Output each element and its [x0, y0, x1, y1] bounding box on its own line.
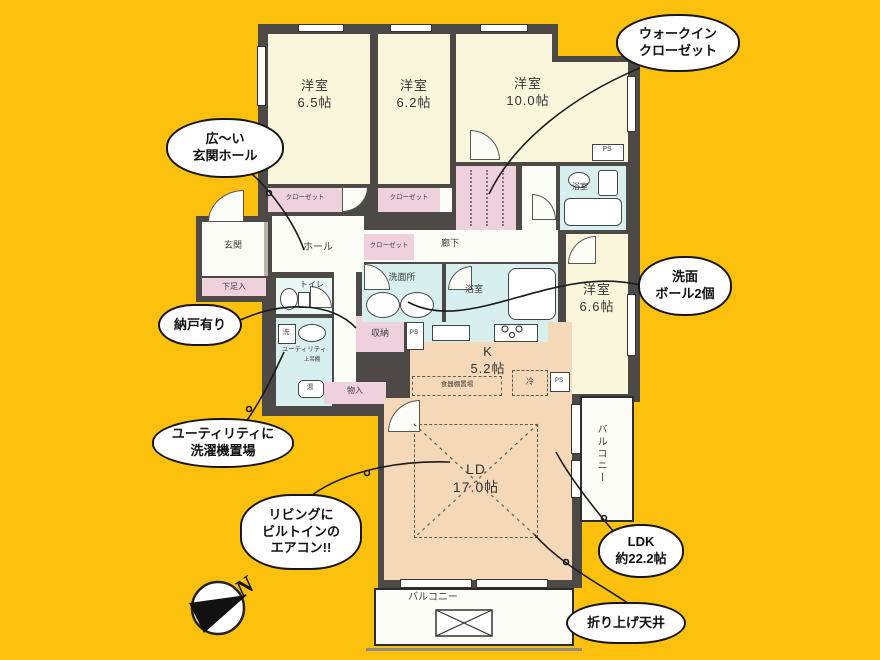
bathtub [564, 198, 622, 226]
fridge-label: 冷 [516, 377, 544, 387]
room-name: 洋室 [372, 78, 456, 95]
callout-line: 広〜い [205, 131, 244, 148]
callout-line: 約22.2帖 [615, 551, 666, 568]
room-size: 6.2帖 [372, 95, 456, 112]
water-heater-label: 湯 [298, 384, 322, 392]
entrance-label: 玄関 [202, 240, 264, 251]
utility-sink [298, 324, 326, 342]
ps-right-label: PS [550, 377, 568, 385]
toilet-label: トイレ [292, 280, 332, 290]
callout-line: エアコン!! [271, 540, 332, 557]
room-size: 5.2帖 [440, 361, 536, 378]
monoire-label: 物入 [324, 386, 386, 396]
window [571, 404, 581, 454]
callout-wash-bowls: 洗面 ボール2個 [638, 256, 732, 316]
closet-rail [486, 170, 488, 226]
balcony-ledge [366, 648, 582, 651]
leader-loop [365, 471, 370, 476]
floor-plan-canvas: バルコニー バルコニー PS PS PS [0, 0, 880, 660]
compass-north-label: N [230, 571, 261, 604]
callout-built-in-aircon: リビングに ビルトインの エアコン!! [240, 494, 362, 570]
callout-line: 納戸有り [174, 317, 226, 334]
callout-raised-ceiling: 折り上げ天井 [566, 602, 686, 644]
callout-line: ボール2個 [655, 286, 714, 303]
callout-entrance-hall: 広〜い 玄関ホール [166, 118, 284, 178]
utility-label: ユーティリティ [274, 346, 334, 354]
living-dining-label: LD 17.0帖 [418, 460, 534, 496]
balcony-right-label: バルコニー [594, 404, 606, 504]
room-name: 洋室 [260, 78, 370, 95]
callout-utility-washer: ユーティリティに 洗濯機置場 [152, 418, 294, 468]
callout-line: 玄関ホール [192, 148, 257, 165]
washroom-label: 洗面所 [366, 272, 438, 283]
entrance-step [264, 222, 268, 276]
closet-hall-label: クローゼット [364, 242, 414, 250]
window [400, 579, 472, 588]
ps-top-label: PS [592, 146, 622, 154]
callout-line: 折り上げ天井 [587, 615, 665, 632]
window [476, 579, 548, 588]
wash-bowl-1 [366, 292, 400, 318]
window [480, 24, 528, 32]
wash-bowl-2 [400, 292, 434, 318]
callout-line: クローゼット [639, 43, 717, 60]
closet-bed2-label: クローゼット [378, 194, 440, 202]
callout-line: リビングに [268, 507, 333, 524]
compass: N [189, 571, 261, 634]
closet-bed1-label: クローゼット [268, 194, 342, 202]
window [571, 460, 581, 498]
callout-line: ウォークイン [639, 26, 717, 43]
toilet-bowl [280, 288, 298, 310]
ps-kitchen-label: PS [406, 329, 422, 337]
callout-line: LDK [628, 534, 655, 551]
corridor-label: 廊下 [428, 238, 472, 249]
bed2-door-gap [440, 188, 452, 212]
washer-label: 洗 [278, 329, 294, 337]
stove [494, 324, 538, 342]
leader-loop [247, 407, 252, 412]
kitchen-label: K 5.2帖 [440, 344, 536, 378]
hall-label: ホール [286, 242, 350, 254]
room-name: 洋室 [564, 282, 630, 299]
bath-center-label: 浴室 [450, 284, 498, 295]
closet-rail [502, 170, 504, 226]
room-size: 17.0帖 [418, 478, 534, 496]
bedroom1-label: 洋室 6.5帖 [260, 78, 370, 112]
room-size: 10.0帖 [470, 93, 586, 110]
window [390, 24, 432, 32]
closet-rail [470, 170, 472, 226]
callout-line: 洗濯機置場 [190, 443, 255, 460]
kitchen-sink [432, 325, 470, 341]
bath-top-label: 浴室 [558, 182, 602, 192]
toilet-tank [298, 292, 310, 308]
callout-line: ビルトインの [262, 524, 340, 541]
bedroom3-label: 洋室 10.0帖 [470, 76, 586, 110]
bedroom2-label: 洋室 6.2帖 [372, 78, 456, 112]
callout-line: ユーティリティに [172, 426, 274, 443]
callout-line: 洗面 [672, 269, 698, 286]
upper-shelf-label: 上吊棚 [296, 357, 328, 364]
compass-needle [189, 595, 247, 633]
shoe-box-label: 下足入 [202, 282, 266, 292]
room-size: 6.6帖 [564, 299, 630, 316]
room-size: 6.5帖 [260, 95, 370, 112]
balcony-right [580, 396, 634, 522]
compass-circle [192, 582, 244, 634]
storage-label: 収納 [356, 328, 404, 339]
bathtub-center [508, 268, 556, 320]
bedroom4-label: 洋室 6.6帖 [564, 282, 630, 316]
callout-ldk-area: LDK 約22.2帖 [598, 524, 684, 578]
room-name: LD [418, 460, 534, 478]
window [627, 76, 636, 132]
entrance-door-arc [208, 190, 244, 222]
dish-shelf-label: 食器棚置場 [414, 381, 500, 389]
callout-storage-room: 納戸有り [158, 304, 242, 346]
window [298, 24, 344, 32]
callout-walk-in-closet: ウォークイン クローゼット [616, 14, 740, 72]
room-name: K [440, 344, 536, 361]
balcony-bottom-label: バルコニー [388, 592, 478, 604]
room-name: 洋室 [470, 76, 586, 93]
